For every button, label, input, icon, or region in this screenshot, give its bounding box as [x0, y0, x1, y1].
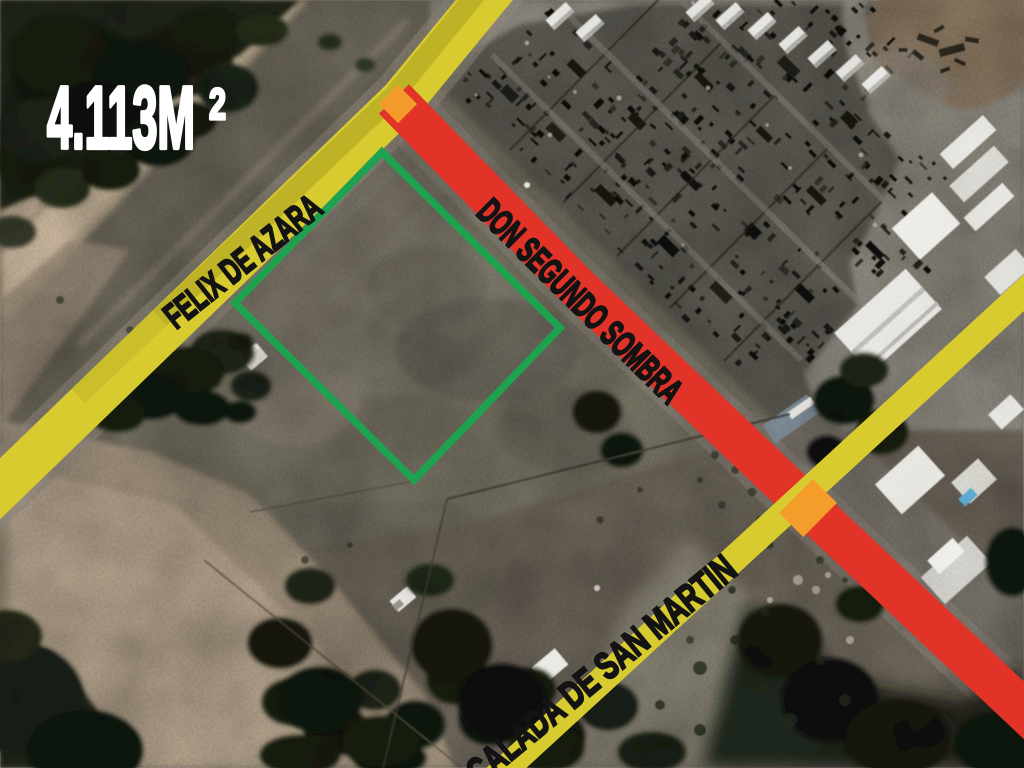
svg-text:4.113M: 4.113M: [47, 68, 195, 167]
svg-text:2: 2: [209, 80, 226, 129]
